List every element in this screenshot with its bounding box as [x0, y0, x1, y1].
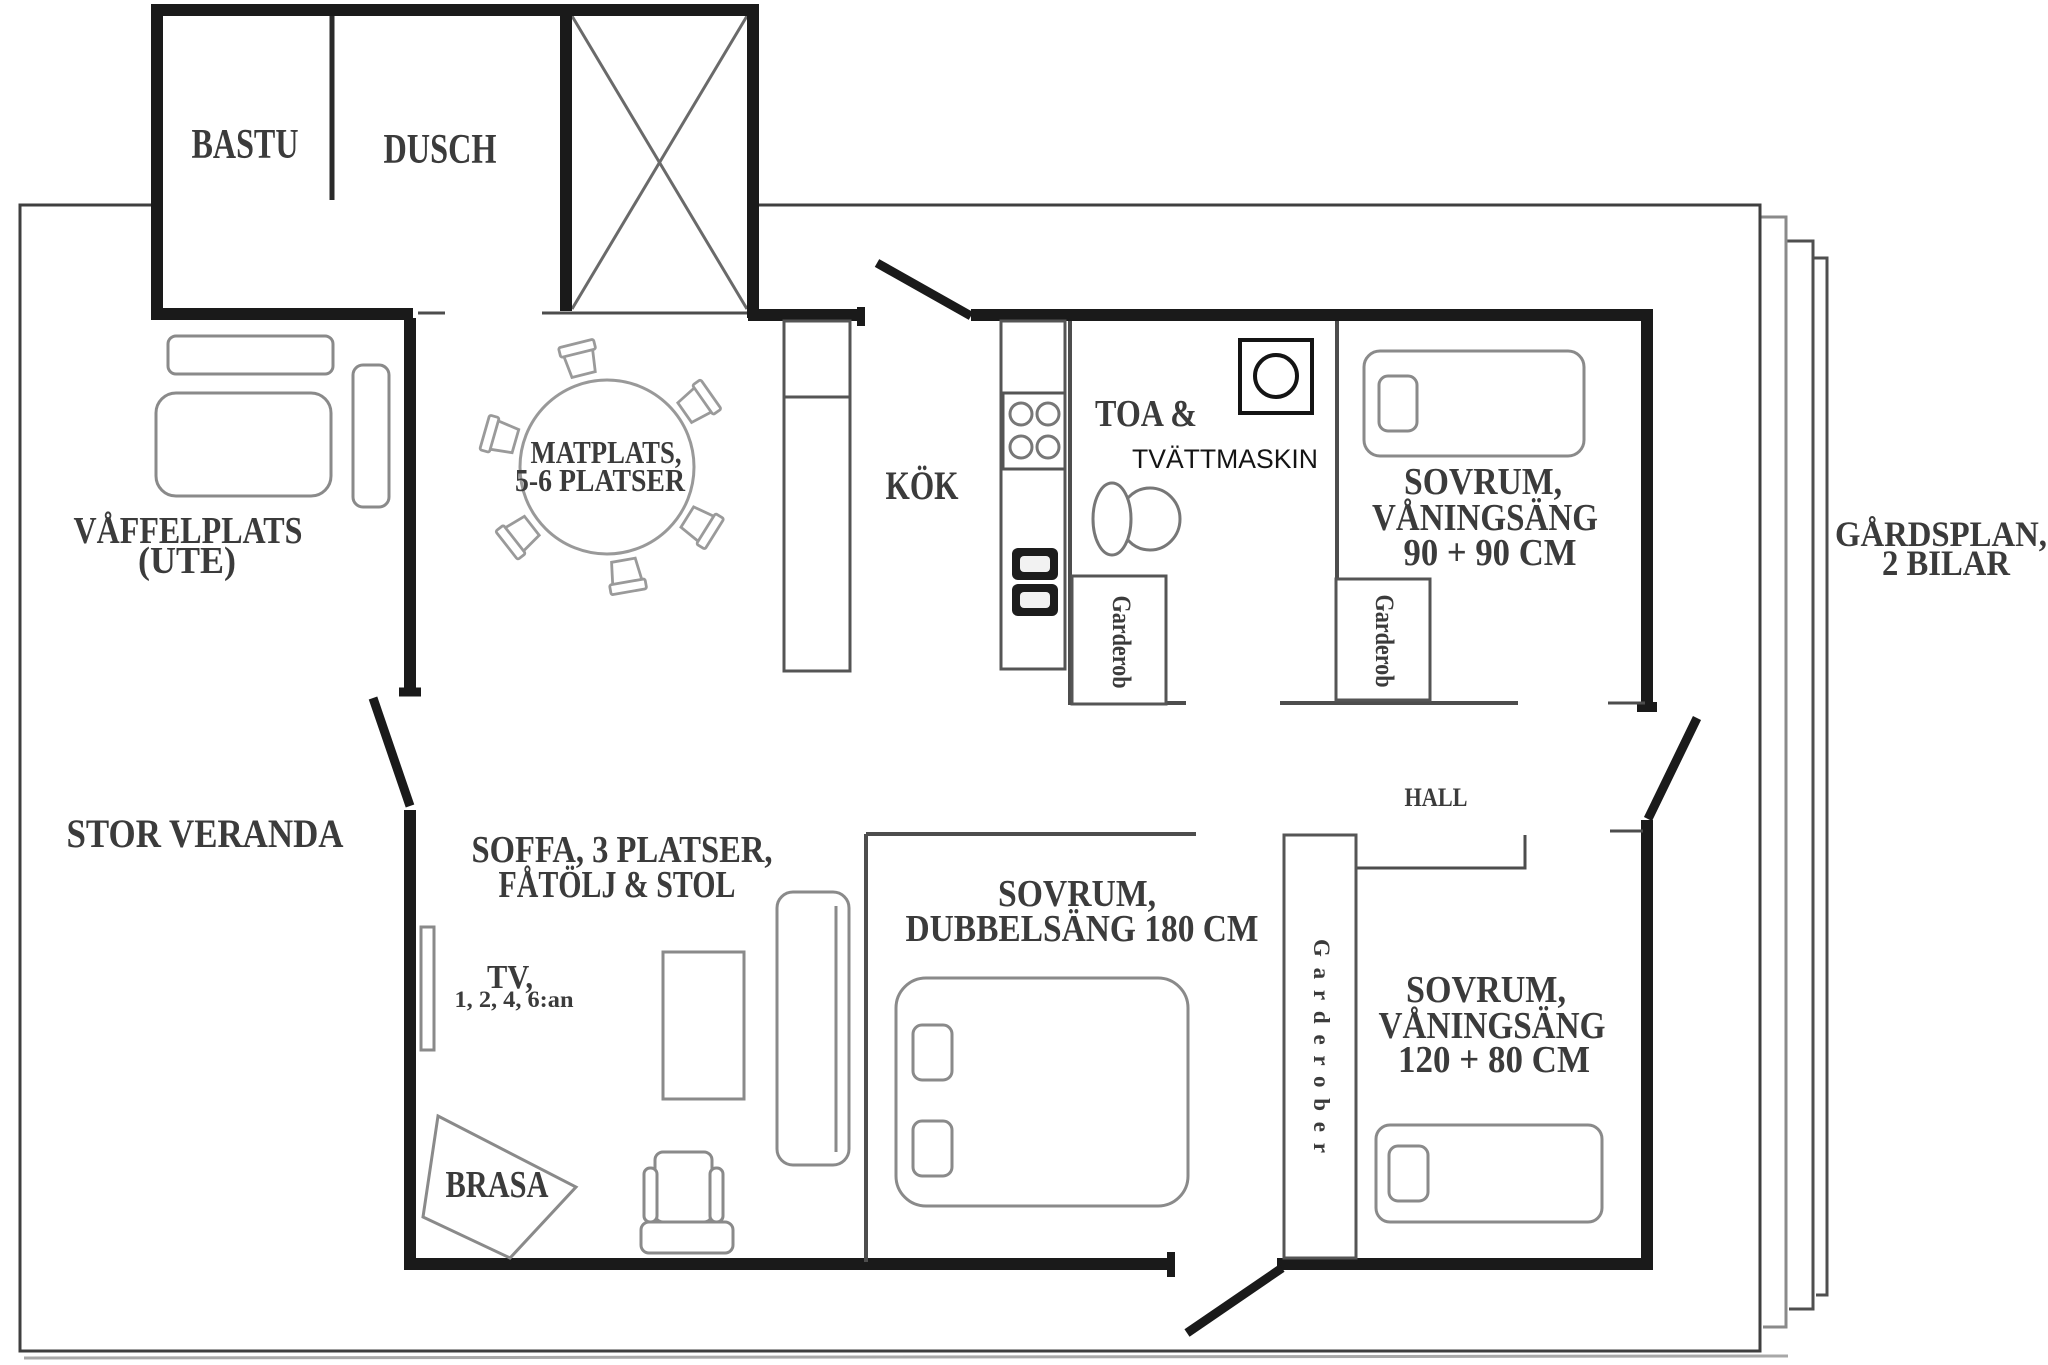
- svg-text:2 BILAR: 2 BILAR: [1882, 543, 2011, 583]
- svg-text:KÖK: KÖK: [886, 463, 959, 508]
- svg-text:DUSCH: DUSCH: [384, 127, 497, 173]
- svg-text:BASTU: BASTU: [192, 122, 299, 168]
- svg-text:Garderob: Garderob: [1370, 595, 1399, 688]
- svg-text:FÅTÖLJ & STOL: FÅTÖLJ & STOL: [499, 864, 736, 906]
- svg-text:5-6 PLATSER: 5-6 PLATSER: [515, 462, 686, 498]
- svg-text:120 + 80 CM: 120 + 80 CM: [1398, 1039, 1590, 1081]
- svg-text:DUBBELSÄNG 180 CM: DUBBELSÄNG 180 CM: [906, 908, 1259, 950]
- svg-text:HALL: HALL: [1405, 783, 1468, 812]
- svg-text:(UTE): (UTE): [138, 540, 236, 582]
- svg-text:BRASA: BRASA: [446, 1164, 549, 1206]
- svg-text:STOR VERANDA: STOR VERANDA: [67, 811, 344, 856]
- svg-text:TOA &: TOA &: [1095, 393, 1197, 435]
- svg-text:1, 2, 4, 6:an: 1, 2, 4, 6:an: [455, 987, 574, 1012]
- svg-text:90 + 90 CM: 90 + 90 CM: [1404, 532, 1577, 574]
- svg-text:Garderob: Garderob: [1107, 596, 1136, 689]
- svg-text:TVÄTTMASKIN: TVÄTTMASKIN: [1132, 444, 1318, 474]
